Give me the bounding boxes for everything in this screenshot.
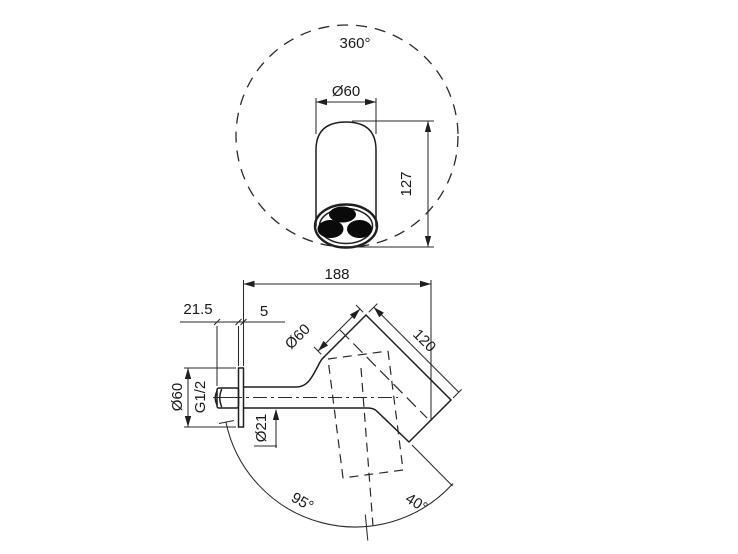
top-view-drawing: 360° Ø60 127 — [236, 25, 458, 248]
height-label: 127 — [398, 171, 415, 196]
shower-arm — [244, 357, 378, 412]
head-length-label: 120 — [409, 326, 439, 356]
arc-right-radial — [412, 445, 453, 486]
tilt-angle-label: 40° — [402, 490, 430, 516]
head-diameter-label: Ø60 — [282, 321, 314, 353]
alt-head-axis — [361, 368, 373, 526]
plate-thickness-label: 5 — [260, 303, 268, 320]
wall-inset-label: 21.5 — [183, 301, 212, 318]
rotation-angle-label: 360° — [339, 35, 370, 52]
nozzle-bottom-left — [318, 220, 344, 238]
side-view-drawing: 188 21.5 5 — [169, 266, 462, 541]
shower-head-alt-position — [328, 351, 403, 526]
arc-divider-tick — [365, 515, 368, 541]
top-diameter-label: Ø60 — [332, 83, 360, 100]
arm-diameter-label: Ø21 — [253, 414, 270, 442]
dim-arm-diameter: Ø21 — [253, 409, 279, 448]
fixture-dimension-drawing: 360° Ø60 127 — [0, 0, 738, 554]
dim-head-length: 120 — [369, 304, 462, 403]
dim-wall-inset: 21.5 5 — [180, 301, 285, 386]
plate-diameter-label: Ø60 — [169, 383, 186, 411]
spray-face — [315, 205, 377, 248]
projection-label: 188 — [324, 266, 349, 283]
nozzle-top — [329, 207, 356, 223]
head-axis-centerline — [340, 330, 427, 418]
dim-top-diameter: Ø60 — [316, 83, 376, 134]
technical-drawing-page: 360° Ø60 127 — [0, 0, 738, 554]
nozzle-bottom-right — [347, 220, 372, 238]
thread-size-label: G1/2 — [192, 381, 209, 414]
